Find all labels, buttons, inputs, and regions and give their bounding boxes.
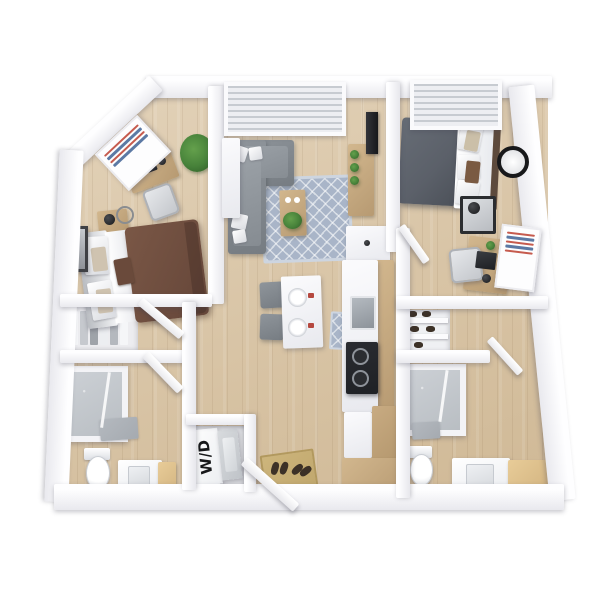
red-napkin (308, 323, 314, 328)
dryer-door (217, 429, 242, 481)
coffee-table-plant (283, 212, 302, 229)
fridge (344, 412, 372, 458)
closet-shelf (404, 318, 448, 323)
console-plant (350, 150, 359, 159)
wall-bathroom1-hall (182, 302, 196, 490)
washer-dryer-label: W/D (194, 439, 216, 475)
entry-shoe (270, 461, 280, 475)
bed2-accent-pillow-brown (464, 160, 480, 183)
bedroom2-window-blinds (410, 80, 502, 130)
sofa-pillow (232, 229, 247, 244)
bedroom2-desk-plant (486, 241, 495, 250)
living-rug (261, 174, 354, 263)
bed1-accent-pillow-tan (90, 246, 108, 272)
console-plant (350, 163, 359, 172)
wall-clock (497, 146, 529, 178)
bedroom2-headphones (482, 274, 491, 283)
dining-chair (260, 314, 285, 341)
bathroom2-bath-mat (412, 421, 441, 439)
coffee-table-bowl (294, 197, 300, 203)
floorplan-scene: W/D (0, 0, 600, 600)
plate (288, 318, 307, 337)
kitchen-cabinet-knob (364, 240, 370, 246)
bathroom2-toilet (410, 454, 433, 486)
dining-table (281, 275, 323, 348)
wall-laundry-top (186, 414, 252, 425)
sofa-pillow (248, 146, 263, 161)
shoes (410, 326, 419, 332)
outer-wall-bottom (54, 484, 564, 510)
bed2-duvet (398, 117, 460, 206)
burner (352, 348, 369, 365)
wall-laundry-entry (244, 414, 256, 492)
burner (352, 370, 369, 387)
bathroom1-bath-mat (99, 417, 138, 442)
wall-kitchen-bedroom2 (396, 228, 410, 498)
wall-bedroom2-bottom (396, 296, 548, 309)
wall-closet1-bathroom1 (60, 350, 188, 363)
plate (288, 288, 307, 307)
wall-living-bedroom2 (386, 82, 400, 252)
coffee-table-bowl (285, 197, 291, 203)
tv (366, 112, 378, 154)
living-storage-cabinet (222, 138, 240, 218)
dryer-door-window (222, 437, 237, 472)
shoes (426, 326, 435, 332)
wall-bathroom2-top (396, 350, 490, 363)
shoes (414, 342, 423, 348)
bedroom1-decor-ring (116, 206, 134, 224)
living-window-blinds (224, 82, 346, 136)
console-plant (350, 176, 359, 185)
bedroom2-leaning-poster (494, 224, 542, 292)
shoes (422, 311, 431, 317)
closet-shelf (404, 334, 448, 339)
bedroom2-nightstand (460, 196, 496, 234)
bedroom2-table-lamp (468, 202, 480, 214)
bathroom1-sink (128, 466, 150, 486)
bedroom2-laptop (475, 251, 497, 270)
red-napkin (308, 293, 314, 298)
bedroom1-table-lamp (104, 214, 115, 225)
entry-shoe (279, 461, 290, 476)
kitchen-sink (350, 296, 376, 330)
